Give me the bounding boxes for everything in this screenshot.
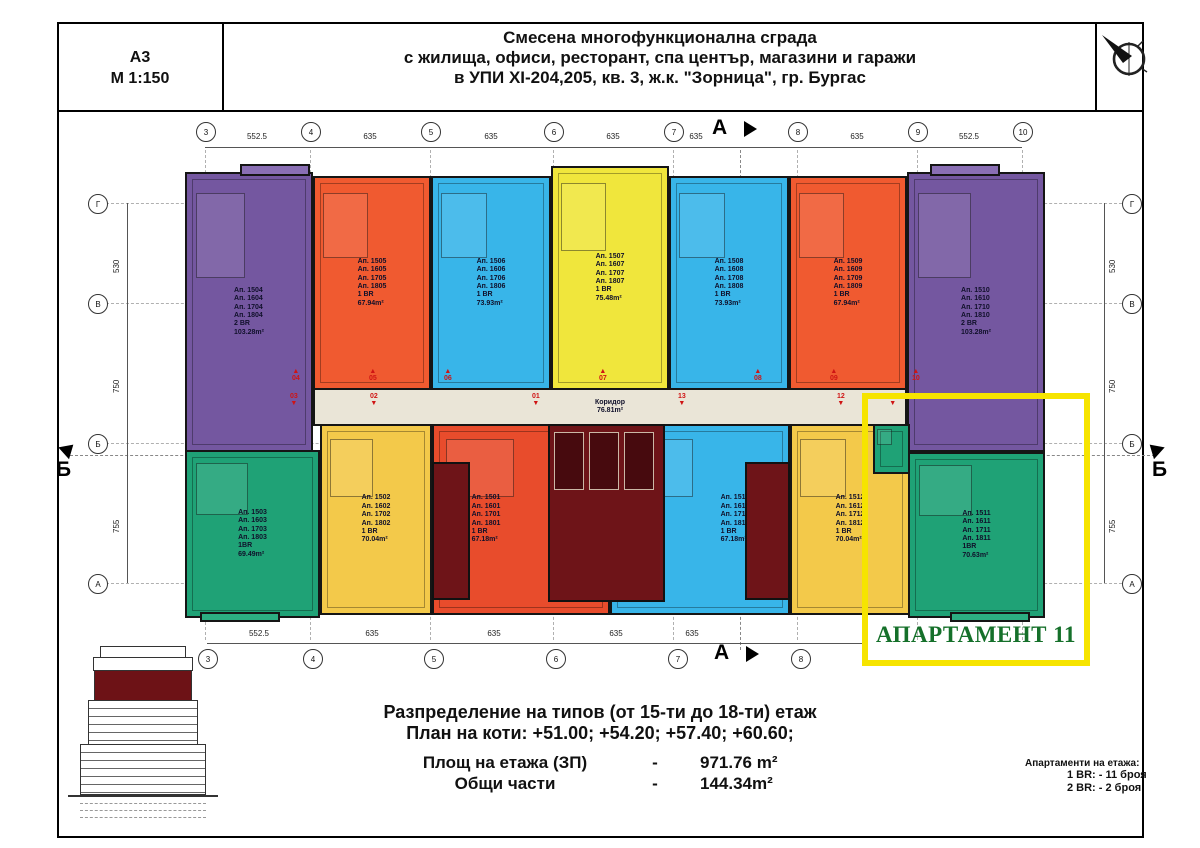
section-arrow-icon (746, 646, 759, 662)
dim-label: 755 (1108, 493, 1117, 533)
grid-circle-top-10: 10 (1013, 122, 1033, 142)
dim-label: 635 (676, 132, 716, 141)
dim-label: 755 (112, 493, 121, 533)
grid-circle-bottom-7: 7 (668, 649, 688, 669)
corridor-label: Коридор 76.81m² (595, 399, 625, 416)
section-arrow-icon (1144, 439, 1164, 460)
arrow-up-icon: ▲ (292, 368, 299, 375)
grid-circle-top-6: 6 (544, 122, 564, 142)
dimension-line-left (127, 203, 128, 583)
sheet-format: А3 (130, 47, 150, 68)
dim-label: 750 (112, 353, 121, 393)
apartment-highlight-label: АПАРТАМЕНТ 11 (872, 616, 1080, 654)
titleblock-bottom-line (57, 110, 1144, 112)
unit-marker: ▲08 (754, 368, 762, 383)
dim-label: 552.5 (949, 132, 989, 141)
apartment-block-03[interactable]: Ап. 1503 Ап. 1603 Ап. 1703 Ап. 1803 1BR … (185, 450, 320, 618)
dim-label: 635 (474, 629, 514, 638)
dim-label: 552.5 (237, 132, 277, 141)
highlight-box-apartment-11[interactable]: АПАРТАМЕНТ 11 (862, 393, 1090, 666)
legend-title: Апартаменти на етажа: (1025, 758, 1180, 769)
unit-marker: ▲07 (599, 368, 607, 383)
titleblock-divider-left (222, 22, 224, 110)
highlighted-floors-band (94, 670, 192, 701)
grid-circle-top-4: 4 (301, 122, 321, 142)
summary-row-floor-area: Площ на етажа (ЗП) - 971.76 m² (400, 752, 830, 773)
section-arrow-icon (744, 121, 757, 137)
apartment-label: Ап. 1510 Ап. 1610 Ап. 1710 Ап. 1810 2 BR… (961, 287, 991, 337)
unit-marker: ▲04 (292, 368, 300, 383)
grid-circle-right-a: А (1122, 574, 1142, 594)
grid-circle-bottom-8: 8 (791, 649, 811, 669)
apartment-label: Ап. 1507 Ап. 1607 Ап. 1707 Ап. 1807 1 BR… (596, 253, 625, 303)
grid-circle-bottom-4: 4 (303, 649, 323, 669)
apartment-label: Ап. 1501 Ап. 1601 Ап. 1701 Ап. 1801 1 BR… (472, 494, 501, 544)
unit-marker: 13▼ (678, 393, 686, 408)
elevator-shaft (554, 432, 584, 490)
grid-circle-top-5: 5 (421, 122, 441, 142)
apartment-label: Ап. 1503 Ап. 1603 Ап. 1703 Ап. 1803 1BR … (238, 509, 267, 559)
apartment-block-04[interactable]: Ап. 1504 Ап. 1604 Ап. 1704 Ап. 1804 2 BR… (185, 172, 313, 452)
grid-circle-top-8: 8 (788, 122, 808, 142)
dim-label: 635 (593, 132, 633, 141)
project-title: Смесена многофункционална сграда с жилищ… (230, 28, 1090, 88)
dim-label: 552.5 (239, 629, 279, 638)
arrow-up-icon: ▲ (369, 368, 376, 375)
unit-marker: ▲10 (912, 368, 920, 383)
apartment-label: Ап. 1509 Ап. 1609 Ап. 1709 Ап. 1809 1 BR… (834, 258, 863, 308)
apartment-label: Ап. 1504 Ап. 1604 Ап. 1704 Ап. 1804 2 BR… (234, 287, 264, 337)
apartment-block-07[interactable]: Ап. 1507 Ап. 1607 Ап. 1707 Ап. 1807 1 BR… (551, 166, 669, 390)
grid-circle-bottom-3: 3 (198, 649, 218, 669)
apartment-block-05[interactable]: Ап. 1505 Ап. 1605 Ап. 1705 Ап. 1805 1 BR… (313, 176, 431, 390)
dim-label: 530 (1108, 233, 1117, 273)
dimension-line-right (1104, 203, 1105, 583)
unit-marker: ▲06 (444, 368, 452, 383)
titleblock-divider-right (1095, 22, 1097, 110)
balcony (930, 164, 1000, 176)
arrow-up-icon: ▲ (912, 368, 919, 375)
dim-label: 635 (596, 629, 636, 638)
unit-marker: ▲05 (369, 368, 377, 383)
elevator-shaft (589, 432, 619, 490)
section-marker-a-top: А (712, 116, 727, 140)
summary-row-common-parts: Общи части - 144.34m² (400, 773, 830, 794)
unit-marker: 01▼ (532, 393, 540, 408)
drawing-sheet: А3 М 1:150 Смесена многофункционална сгр… (0, 0, 1200, 848)
grid-circle-right-g: Г (1122, 194, 1142, 214)
grid-circle-right-v: В (1122, 294, 1142, 314)
apartment-block-06[interactable]: Ап. 1506 Ап. 1606 Ап. 1706 Ап. 1806 1 BR… (431, 176, 551, 390)
stairwell-right (745, 462, 790, 600)
arrow-up-icon: ▲ (754, 368, 761, 375)
floor-distribution-notes: Разпределение на типов (от 15-ти до 18-т… (300, 702, 900, 744)
distribution-heading: Разпределение на типов (от 15-ти до 18-т… (300, 702, 900, 723)
unit-marker: 12▼ (837, 393, 845, 408)
unit-marker: ▲09 (830, 368, 838, 383)
arrow-down-icon: ▼ (678, 400, 685, 407)
apartments-per-floor-legend: Апартаменти на етажа: 1 BR: - 11 броя 2 … (1025, 758, 1180, 795)
apartment-block-08[interactable]: Ап. 1508 Ап. 1608 Ап. 1708 Ап. 1808 1 BR… (669, 176, 789, 390)
building-elevation-icon (78, 644, 208, 826)
grid-circle-bottom-6: 6 (546, 649, 566, 669)
unit-marker: 02▼ (370, 393, 378, 408)
arrow-down-icon: ▼ (370, 400, 377, 407)
elevator-shaft (624, 432, 654, 490)
balcony (240, 164, 310, 176)
apartment-label: Ап. 1512 Ап. 1612 Ап. 1712 Ап. 1812 1 BR… (836, 494, 865, 544)
dim-label: 635 (471, 132, 511, 141)
dim-label: 635 (352, 629, 392, 638)
legend-2br-count: 2 BR: - 2 броя (1067, 782, 1180, 795)
dim-label: 750 (1108, 353, 1117, 393)
dim-label: 635 (672, 629, 712, 638)
apartment-label: Ап. 1508 Ап. 1608 Ап. 1708 Ап. 1808 1 BR… (715, 258, 744, 308)
apartment-block-09[interactable]: Ап. 1509 Ап. 1609 Ап. 1709 Ап. 1809 1 BR… (789, 176, 907, 390)
section-marker-b-left: Б (56, 458, 71, 482)
arrow-down-icon: ▼ (837, 400, 844, 407)
apartment-label: Ап. 1502 Ап. 1602 Ап. 1702 Ап. 1802 1 BR… (362, 494, 391, 544)
arrow-up-icon: ▲ (599, 368, 606, 375)
dimension-line-bottom (207, 643, 862, 644)
section-marker-a-bottom: А (714, 641, 729, 665)
arrow-down-icon: ▼ (290, 400, 297, 407)
arrow-up-icon: ▲ (444, 368, 451, 375)
dim-label: 635 (837, 132, 877, 141)
dim-label: 530 (112, 233, 121, 273)
apartment-label: Ап. 1506 Ап. 1606 Ап. 1706 Ап. 1806 1 BR… (477, 258, 506, 308)
apartment-block-02[interactable]: Ап. 1502 Ап. 1602 Ап. 1702 Ап. 1802 1 BR… (320, 424, 432, 615)
levels-heading: План на коти: +51.00; +54.20; +57.40; +6… (300, 723, 900, 744)
grid-circle-right-b: Б (1122, 434, 1142, 454)
dimension-line-top (205, 147, 1022, 148)
apartment-label: Ап. 1505 Ап. 1605 Ап. 1705 Ап. 1805 1 BR… (358, 258, 387, 308)
grid-circle-left-v: В (88, 294, 108, 314)
balcony (200, 612, 280, 622)
sheet-format-cell: А3 М 1:150 (59, 30, 221, 106)
section-marker-b-right: Б (1152, 458, 1167, 482)
grid-circle-top-9: 9 (908, 122, 928, 142)
corridor: Коридор 76.81m² (313, 388, 907, 426)
grid-circle-top-3: 3 (196, 122, 216, 142)
grid-circle-bottom-5: 5 (424, 649, 444, 669)
arrow-up-icon: ▲ (830, 368, 837, 375)
grid-circle-left-a: А (88, 574, 108, 594)
legend-1br-count: 1 BR: - 11 броя (1067, 769, 1180, 782)
title-line-3: в УПИ XI-204,205, кв. 3, ж.к. "Зорница",… (230, 68, 1090, 88)
area-summary: Площ на етажа (ЗП) - 971.76 m² Общи част… (400, 752, 830, 794)
sheet-scale: М 1:150 (111, 68, 170, 89)
grid-circle-left-g: Г (88, 194, 108, 214)
north-compass-icon (1100, 28, 1148, 86)
unit-marker: 03▼ (290, 393, 298, 408)
stairwell-left (432, 462, 470, 600)
title-line-2: с жилища, офиси, ресторант, спа център, … (230, 48, 1090, 68)
title-line-1: Смесена многофункционална сграда (230, 28, 1090, 48)
arrow-down-icon: ▼ (532, 400, 539, 407)
grid-circle-left-b: Б (88, 434, 108, 454)
dim-label: 635 (350, 132, 390, 141)
